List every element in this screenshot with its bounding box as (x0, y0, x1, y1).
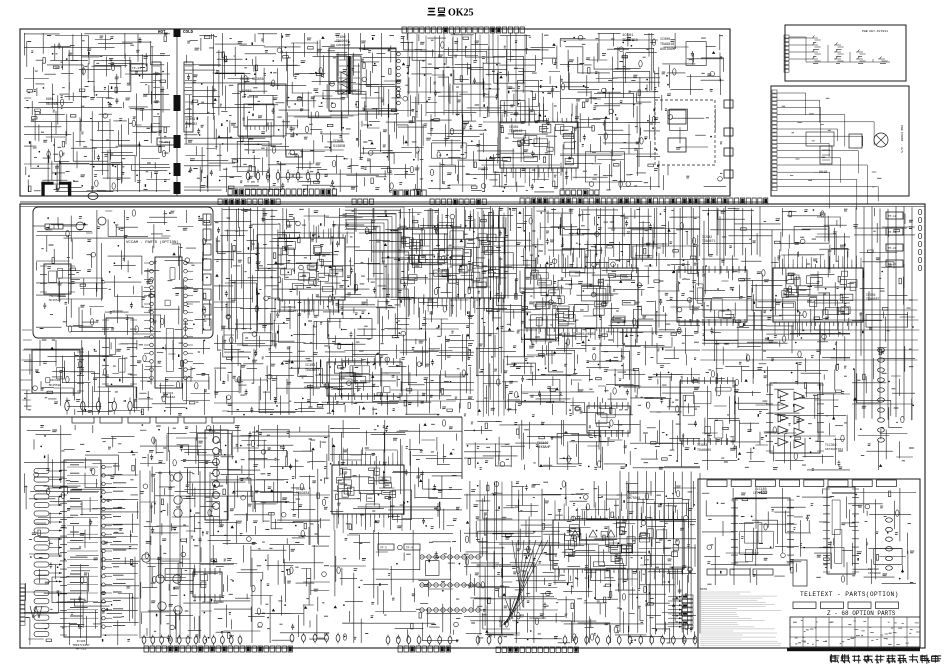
svg-text:TP-21: TP-21 (888, 263, 897, 266)
svg-text:NOTE: NOTE (700, 588, 707, 591)
svg-text:TDA6605: TDA6605 (697, 449, 711, 453)
svg-text:OK OPTION: OK OPTION (242, 96, 258, 99)
svg-text:9618: 9618 (819, 171, 827, 175)
svg-text:HM-131: HM-131 (76, 648, 87, 651)
svg-text:COLD: COLD (183, 31, 194, 35)
svg-text:SM75061: SM75061 (627, 496, 640, 500)
svg-text:TP-4: TP-4 (406, 547, 413, 550)
svg-text:IC862: IC862 (333, 140, 343, 144)
svg-text:D801: D801 (46, 97, 54, 101)
svg-text:TDA9816: TDA9816 (660, 43, 674, 47)
svg-text:IC501: IC501 (622, 34, 634, 38)
svg-text:MC4558C: MC4558C (49, 299, 62, 302)
svg-text:M3C103: M3C103 (50, 295, 61, 298)
svg-text:T1C101: T1C101 (627, 491, 639, 495)
svg-text:NIC104: NIC104 (50, 379, 61, 382)
svg-text:AUDIOAMP: AUDIOAMP (336, 44, 351, 47)
svg-text:IC306: IC306 (76, 640, 85, 643)
svg-text:IC001: IC001 (185, 118, 195, 122)
svg-text:TP-3: TP-3 (380, 547, 387, 550)
svg-text:IC402: IC402 (437, 270, 447, 274)
svg-text:41C332 8240BK: 41C332 8240BK (202, 601, 224, 604)
svg-text:PWB FRONT - A/S: PWB FRONT - A/S (900, 125, 904, 153)
svg-text:HOT: HOT (158, 31, 166, 35)
svg-text:TDA3654: TDA3654 (296, 491, 309, 495)
svg-text:AUDIOAMP: AUDIOAMP (660, 48, 676, 52)
svg-text:TDA9016: TDA9016 (336, 39, 349, 43)
svg-text:N3C331: N3C331 (163, 392, 174, 395)
svg-text:TELETEXT - PARTS(OPTION): TELETEXT - PARTS(OPTION) (800, 591, 899, 598)
svg-text:IC101 TDA884106GR2: IC101 TDA884106GR2 (561, 332, 596, 336)
svg-text:TDA4671: TDA4671 (702, 239, 715, 243)
svg-text:TCA8460: TCA8460 (437, 275, 451, 279)
svg-text:CF70200: CF70200 (868, 572, 881, 575)
svg-text:PWB KEY-KC7931: PWB KEY-KC7931 (862, 29, 888, 33)
svg-text:S1365B: S1365B (333, 145, 345, 149)
svg-text:TDA8350: TDA8350 (622, 39, 639, 43)
svg-text:41C102: 41C102 (112, 310, 123, 313)
svg-text:IC303: IC303 (305, 364, 315, 368)
svg-text:T8C000: T8C000 (868, 568, 879, 571)
svg-text:IC862: IC862 (240, 77, 250, 81)
svg-text:T1C302: T1C302 (825, 443, 837, 447)
svg-text:AS74HCT151: AS74HCT151 (825, 448, 843, 451)
svg-text:TDA8143: TDA8143 (509, 129, 522, 133)
svg-text:TP-19: TP-19 (888, 231, 897, 234)
svg-text:TDA4687: TDA4687 (866, 297, 879, 301)
svg-text:TP-18: TP-18 (888, 215, 897, 218)
svg-text:TP-28: TP-28 (288, 153, 297, 156)
svg-text:MC4558C: MC4558C (49, 384, 62, 387)
svg-text:CF7230E: CF7230E (753, 491, 766, 495)
svg-text:VCCAM - PARTS (OPTION): VCCAM - PARTS (OPTION) (126, 240, 179, 245)
svg-text:SVREG: SVREG (478, 168, 488, 172)
svg-text:RB406B: RB406B (46, 102, 58, 106)
svg-text:S1365B: S1365B (252, 77, 264, 81)
svg-text:CF70866A: CF70866A (161, 396, 176, 399)
svg-text:IC101 TDA8843: IC101 TDA8843 (288, 310, 314, 314)
svg-text:TP-23: TP-23 (132, 67, 141, 70)
svg-text:TDA3857: TDA3857 (305, 369, 319, 373)
svg-text:TP-20: TP-20 (888, 247, 897, 250)
svg-text:AN8202: AN8202 (185, 123, 197, 127)
svg-text:5VREG: 5VREG (242, 89, 252, 93)
svg-text:TP-26: TP-26 (159, 141, 168, 144)
svg-text:TEKNAHP: TEKNAHP (537, 445, 550, 449)
svg-text:IC000: IC000 (660, 38, 670, 42)
svg-text:TC903: TC903 (697, 444, 707, 448)
svg-text:OK25: OK25 (448, 8, 474, 19)
svg-text:Z - 68 OPTION PARTS: Z - 68 OPTION PARTS (827, 610, 896, 617)
